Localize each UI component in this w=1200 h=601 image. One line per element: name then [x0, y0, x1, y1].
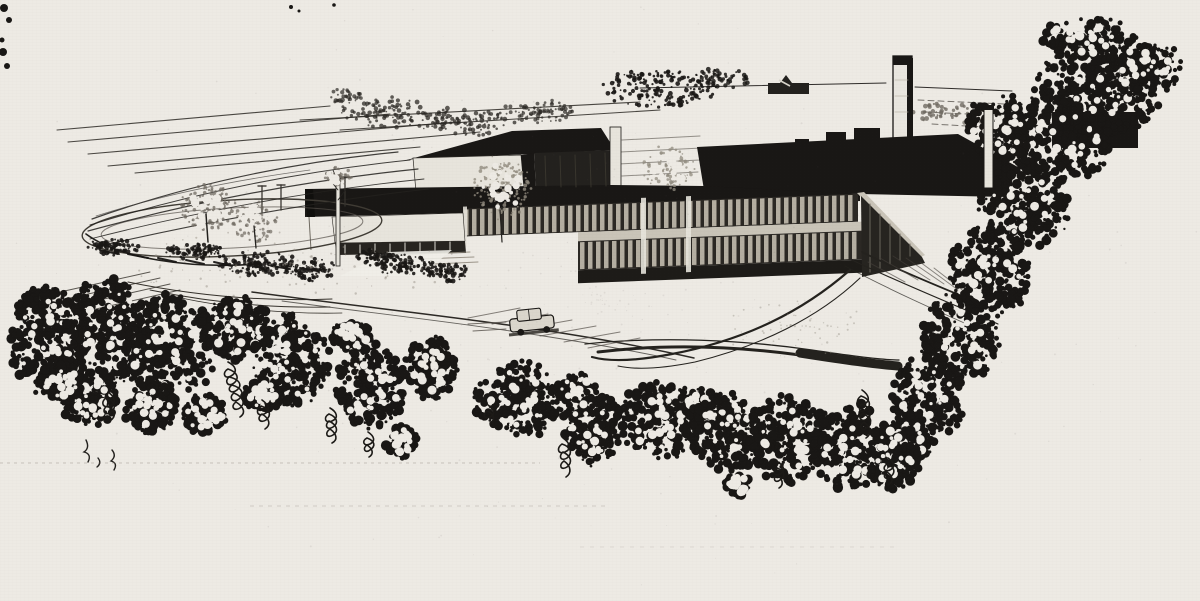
illustration-canvas: Aerial perspective ink rendering of a mo… — [0, 0, 1200, 601]
corner-column — [610, 127, 621, 187]
rooftop-unit — [826, 132, 846, 145]
yard-light-pole — [983, 105, 994, 188]
expansion-joint — [686, 196, 691, 272]
rooftop-unit — [854, 128, 880, 143]
expansion-joint — [641, 198, 646, 274]
rooftop-unit — [795, 139, 809, 148]
factory-rendering-svg: Aerial perspective ink rendering of a mo… — [0, 0, 1200, 601]
